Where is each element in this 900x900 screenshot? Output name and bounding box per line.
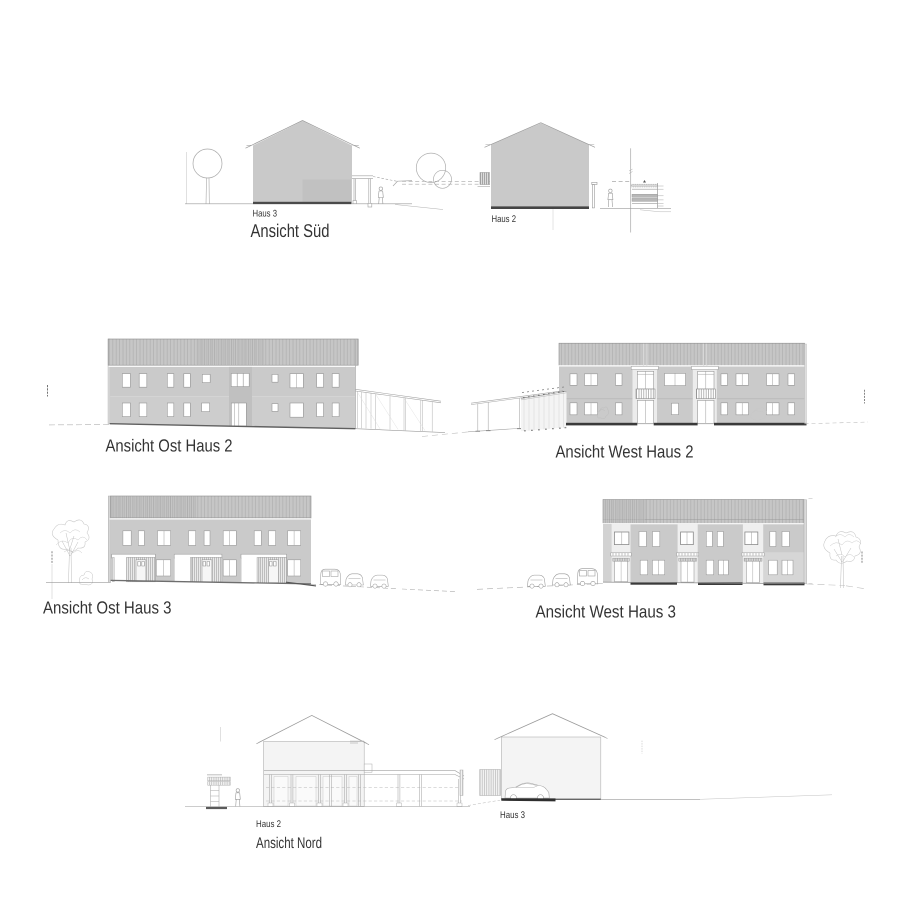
svg-text:Ansicht Ost Haus 3: Ansicht Ost Haus 3 (43, 597, 172, 617)
svg-text:Ansicht West Haus 2: Ansicht West Haus 2 (556, 442, 694, 462)
svg-text:Ansicht Ost Haus 2: Ansicht Ost Haus 2 (106, 436, 233, 456)
svg-text:Ansicht Nord: Ansicht Nord (256, 835, 322, 852)
svg-text:Ansicht Süd: Ansicht Süd (251, 220, 330, 241)
svg-text:Haus 3: Haus 3 (500, 810, 525, 821)
svg-text:Haus 2: Haus 2 (256, 819, 281, 830)
svg-text:Haus 2: Haus 2 (492, 214, 517, 225)
svg-text:Ansicht West Haus 3: Ansicht West Haus 3 (536, 601, 677, 621)
svg-text:Haus 3: Haus 3 (253, 209, 278, 220)
